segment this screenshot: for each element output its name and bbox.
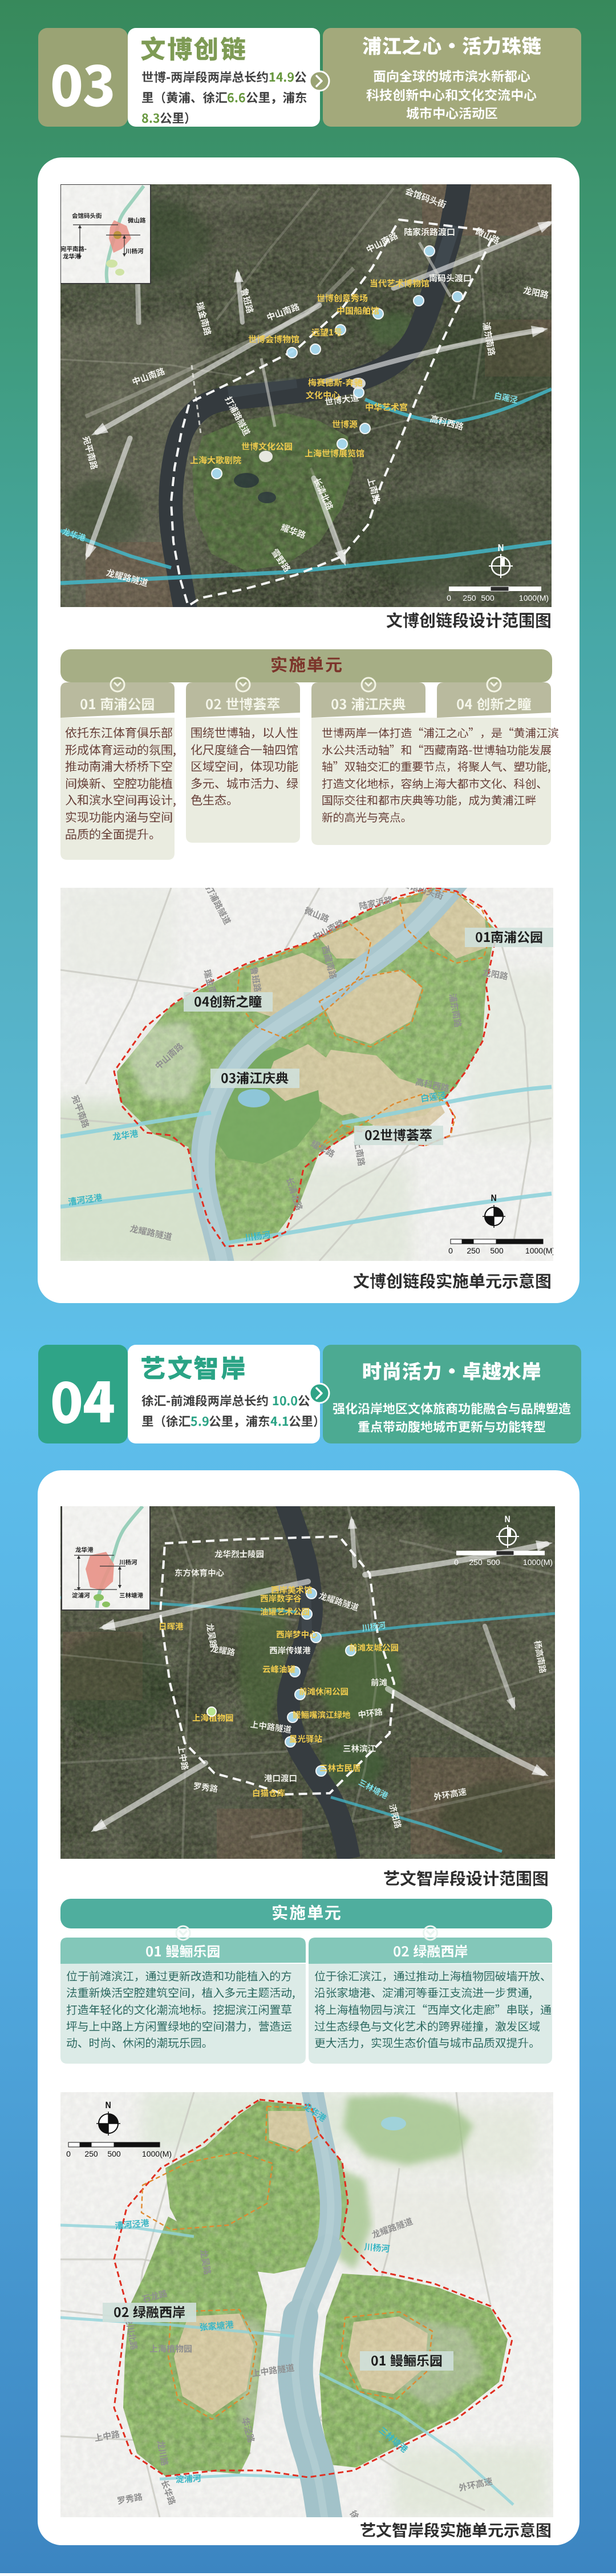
svg-text:1000(M): 1000(M)	[519, 593, 549, 602]
svg-text:0: 0	[448, 1246, 453, 1255]
svg-text:0: 0	[447, 593, 451, 602]
svg-text:500: 500	[481, 593, 495, 602]
svg-text:500: 500	[490, 1246, 504, 1255]
svg-text:250: 250	[469, 1558, 483, 1567]
svg-text:0: 0	[66, 2149, 71, 2158]
svg-text:0: 0	[454, 1558, 459, 1567]
svg-text:500: 500	[107, 2149, 121, 2158]
svg-text:250: 250	[467, 1246, 480, 1255]
svg-text:250: 250	[84, 2149, 98, 2158]
svg-text:250: 250	[463, 593, 476, 602]
svg-text:1000(M): 1000(M)	[525, 1246, 555, 1255]
svg-text:1000(M): 1000(M)	[523, 1558, 553, 1567]
svg-text:500: 500	[487, 1558, 500, 1567]
svg-text:1000(M): 1000(M)	[142, 2149, 172, 2158]
